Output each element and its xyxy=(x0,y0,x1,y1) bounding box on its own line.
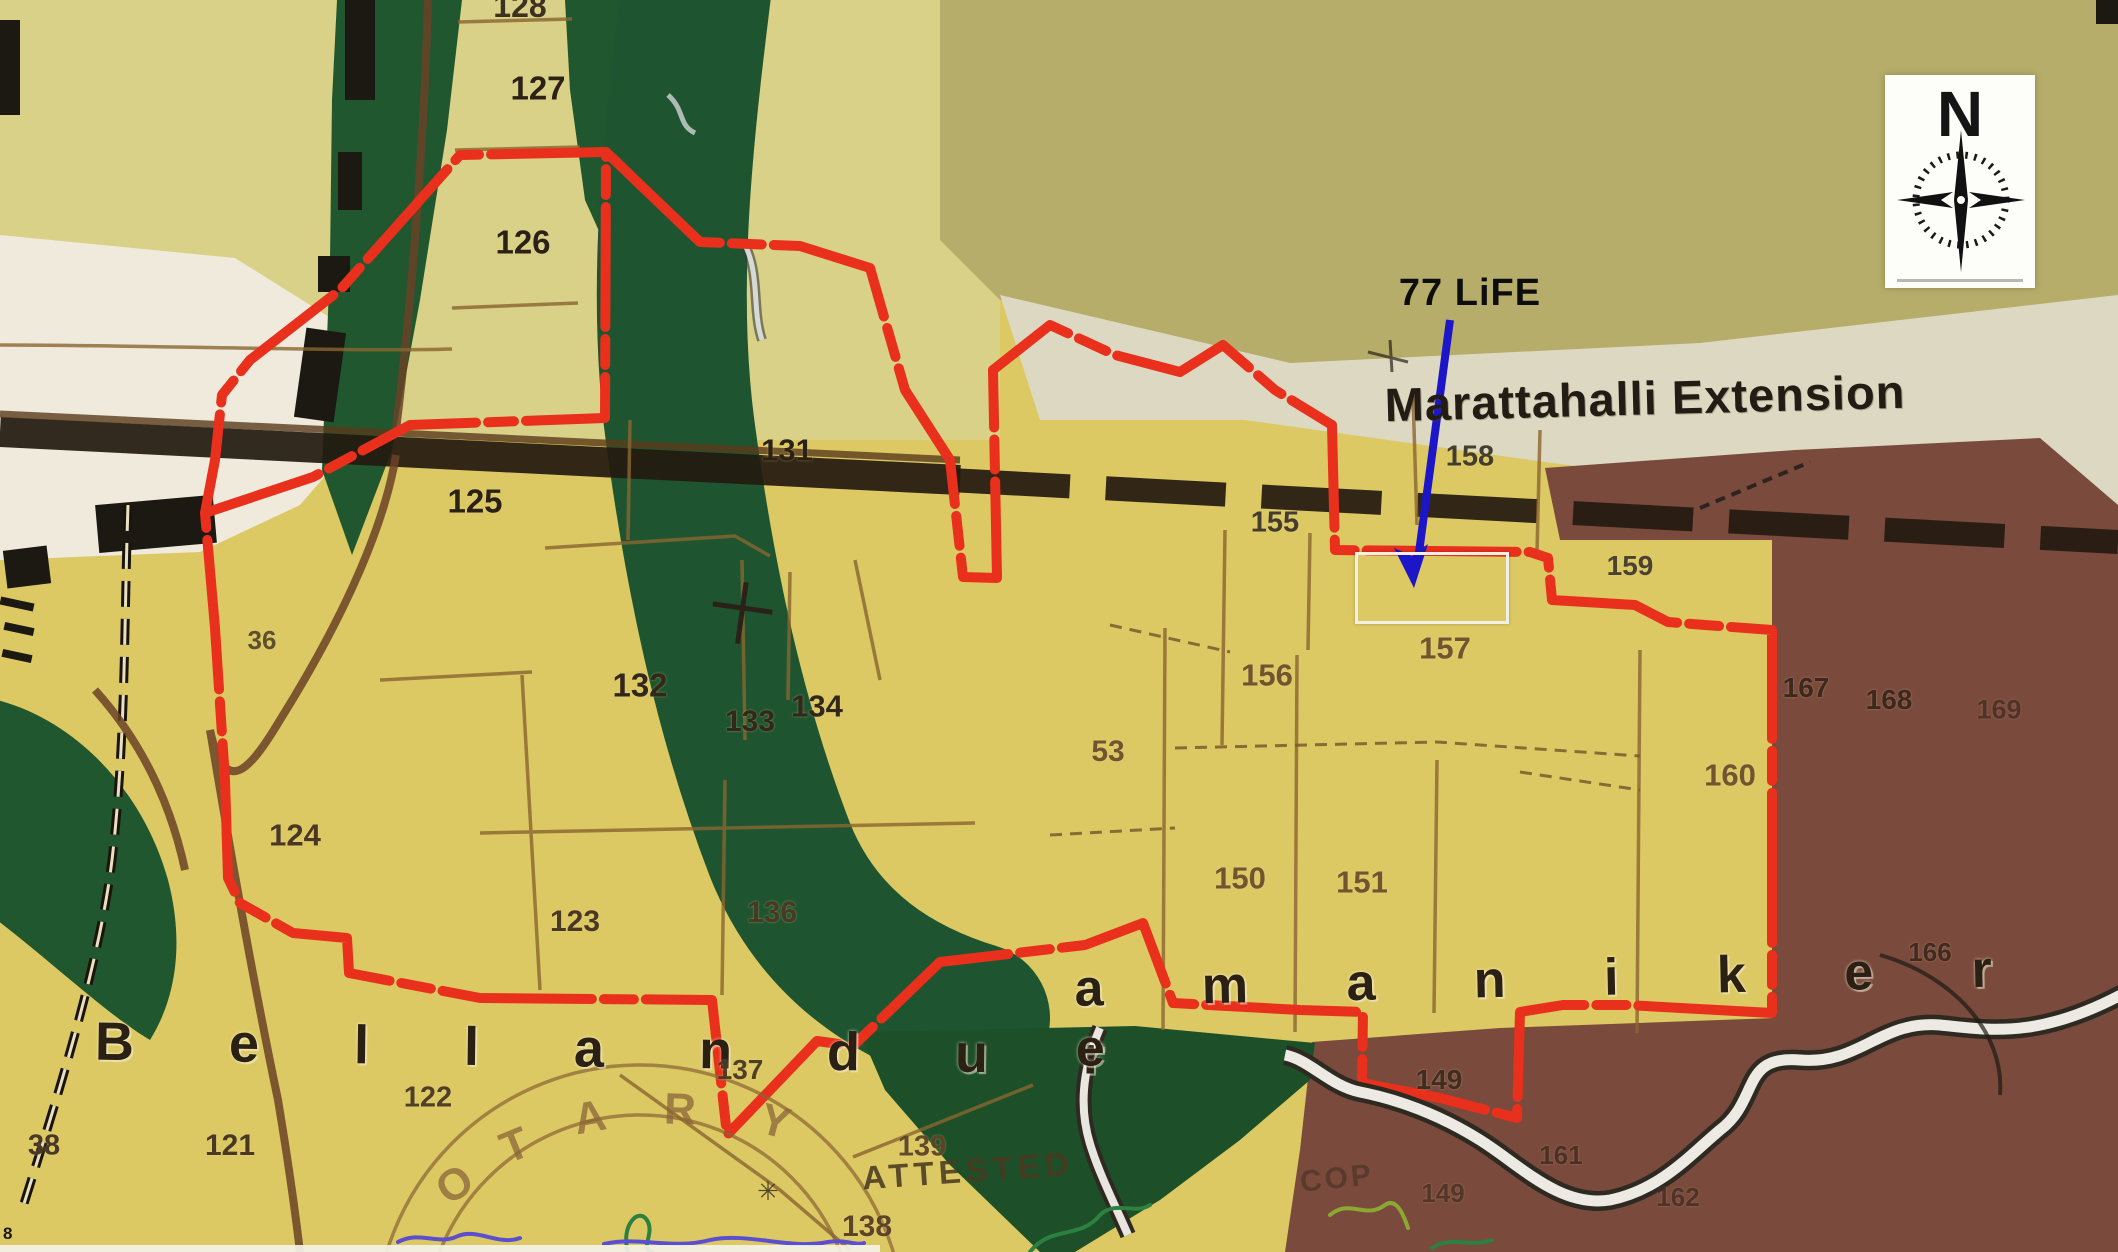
compass-needle-icon xyxy=(1885,75,2035,288)
plot-label-126: 126 xyxy=(495,226,550,259)
plot-label-121: 121 xyxy=(205,1131,255,1161)
plot-label-159: 159 xyxy=(1607,552,1654,580)
stamp-arc-letter-R: R xyxy=(663,1084,697,1135)
plot-label-156: 156 xyxy=(1241,660,1293,691)
plot-label-155: 155 xyxy=(1251,509,1299,538)
region-title: Marattahalli Extension xyxy=(1384,368,1906,429)
plot-label-160: 160 xyxy=(1704,760,1756,791)
life-label: 77 LiFE xyxy=(1399,274,1541,312)
plot-label-131: 131 xyxy=(761,435,813,466)
plot-label-123: 123 xyxy=(550,907,600,937)
plot-label-136: 136 xyxy=(747,898,797,928)
plot-label-127: 127 xyxy=(510,72,565,105)
plot-label-133: 133 xyxy=(725,707,775,737)
scan-edge xyxy=(0,1245,880,1252)
plot-label-149: 149 xyxy=(1416,1066,1463,1094)
lake-name-word2: a m a n i k e r e xyxy=(1074,937,2118,1079)
plot-label-125: 125 xyxy=(447,485,502,518)
plot-label-53: 53 xyxy=(1091,737,1124,767)
plot-highlight-box xyxy=(1355,552,1509,624)
plot-label-132: 132 xyxy=(612,669,667,702)
plot-label-158: 158 xyxy=(1446,443,1494,472)
plot-label-124: 124 xyxy=(269,820,321,851)
plot-label-166: 166 xyxy=(1908,939,1951,965)
plot-label-149: 149 xyxy=(1421,1180,1464,1206)
stamp-star-icon: ✳ xyxy=(757,1176,779,1206)
plot-label-38: 38 xyxy=(28,1132,60,1161)
plot-label-138: 138 xyxy=(842,1212,892,1242)
plot-label-151: 151 xyxy=(1336,867,1388,898)
plot-label-162: 162 xyxy=(1656,1184,1699,1210)
plot-label-36: 36 xyxy=(248,627,277,653)
plot-label-161: 161 xyxy=(1539,1142,1582,1168)
corner-mark: 8 xyxy=(3,1224,12,1244)
plot-label-150: 150 xyxy=(1214,863,1266,894)
plot-label-168: 168 xyxy=(1866,686,1913,714)
plot-label-134: 134 xyxy=(791,691,843,722)
plot-boundary-dashed xyxy=(1050,625,1640,835)
plot-label-137: 137 xyxy=(717,1056,764,1084)
plot-label-128: 128 xyxy=(493,0,546,22)
plot-label-157: 157 xyxy=(1419,633,1471,664)
plot-label-169: 169 xyxy=(1976,697,2021,724)
compass-caption-line xyxy=(1897,279,2023,282)
plot-label-167: 167 xyxy=(1783,674,1830,702)
scanned-survey-map: ✳ 77 LiFE Marattahalli Extension B e l l… xyxy=(0,0,2118,1252)
compass-rose: N xyxy=(1885,75,2035,288)
plot-label-122: 122 xyxy=(404,1084,452,1113)
plot-label-139: 139 xyxy=(898,1133,946,1162)
